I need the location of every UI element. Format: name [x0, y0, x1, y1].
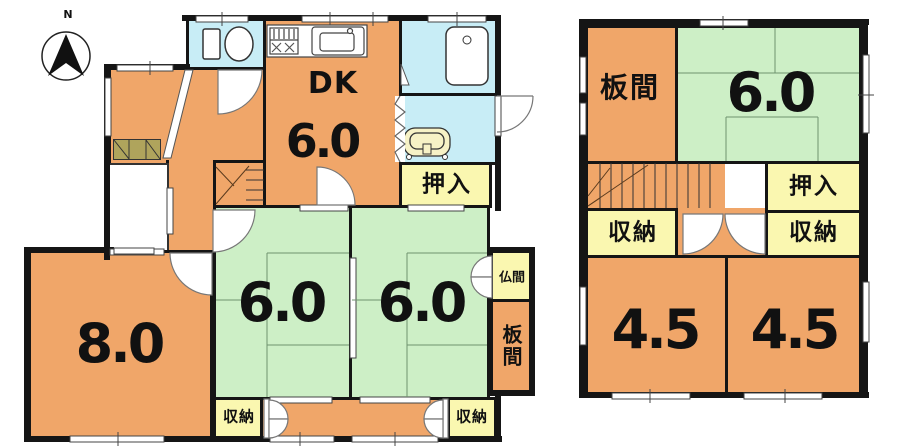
tatami-center-area: 6.0: [238, 276, 325, 330]
wall: [579, 392, 869, 398]
entrance-porch: [108, 163, 169, 255]
shoe-cabinet: [113, 139, 161, 160]
stairs-1f: [213, 160, 266, 208]
wall: [24, 436, 502, 442]
wall: [104, 64, 110, 260]
wall: [579, 19, 869, 25]
oshiire-2f-label: 押入: [789, 176, 839, 199]
storage-e-2f-label: 収納: [789, 222, 839, 245]
room-45-east-area: 4.5: [751, 303, 838, 357]
corridor-1f: [166, 160, 216, 255]
stairs-2f: [585, 161, 725, 211]
dk-room: [263, 18, 402, 208]
wall: [104, 64, 190, 70]
itanoma-2f-label: 板間: [600, 74, 660, 102]
wall: [579, 19, 585, 398]
bathroom: [399, 18, 498, 96]
tatami-2f-area: 6.0: [727, 66, 814, 120]
wall: [24, 247, 114, 253]
hall-2f: [678, 208, 765, 258]
storage-se-label: 収納: [456, 410, 488, 425]
storage-sw-label: 収納: [223, 410, 255, 425]
wall: [495, 390, 501, 442]
exterior-door-arc: [497, 96, 533, 132]
dk-area: 6.0: [286, 118, 359, 164]
wall: [182, 15, 500, 21]
room-45-west-area: 4.5: [612, 303, 699, 357]
wall: [24, 247, 30, 442]
storage-w-2f-label: 収納: [608, 222, 658, 245]
wall: [487, 247, 535, 253]
dk-label: DK: [308, 69, 358, 99]
veranda: [260, 397, 450, 440]
washroom: [399, 93, 498, 165]
wall: [862, 19, 868, 398]
compass: N: [30, 8, 106, 92]
tatami-east-area: 6.0: [378, 276, 465, 330]
butsuma-label: 仏間: [499, 272, 525, 285]
toilet-room: [186, 18, 266, 70]
itanoma-1f-label: 板間: [501, 324, 521, 368]
floor-plan: N DK 6.0 押入 8.0 6.0 6.0 仏間 板間 収納 収納 板間 6…: [0, 0, 898, 448]
oshiire-1f-label: 押入: [422, 174, 472, 197]
wall: [495, 15, 501, 211]
room8-area: 8.0: [76, 317, 163, 371]
wall: [529, 247, 535, 396]
compass-north-label: N: [63, 8, 72, 21]
